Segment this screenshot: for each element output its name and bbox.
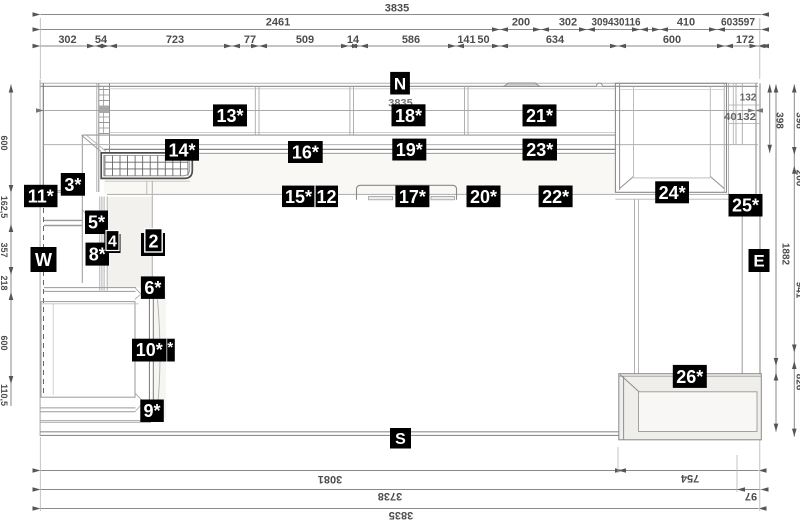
svg-text:172: 172 <box>736 34 754 46</box>
svg-text:600: 600 <box>0 135 9 150</box>
svg-text:19*: 19* <box>396 140 423 160</box>
svg-text:302: 302 <box>559 17 577 29</box>
svg-text:941: 941 <box>794 282 800 299</box>
svg-text:634: 634 <box>546 34 565 46</box>
svg-text:14: 14 <box>347 34 360 46</box>
svg-text:1882: 1882 <box>780 243 791 266</box>
svg-text:132: 132 <box>740 93 757 104</box>
svg-text:4: 4 <box>108 234 117 251</box>
svg-text:18*: 18* <box>395 106 422 126</box>
svg-text:509: 509 <box>296 34 314 46</box>
svg-text:17*: 17* <box>399 187 426 207</box>
svg-text:754: 754 <box>680 472 699 484</box>
svg-text:357: 357 <box>0 242 9 257</box>
svg-text:723: 723 <box>166 34 184 46</box>
svg-text:26*: 26* <box>676 367 703 387</box>
svg-text:826: 826 <box>794 374 800 391</box>
svg-text:110,5: 110,5 <box>0 384 9 406</box>
svg-text:9*: 9* <box>144 401 161 421</box>
svg-text:22*: 22* <box>542 187 569 207</box>
svg-text:*: * <box>167 339 173 356</box>
svg-text:3835: 3835 <box>385 3 409 15</box>
svg-text:16*: 16* <box>292 142 319 162</box>
svg-text:600: 600 <box>663 34 681 46</box>
svg-text:8*: 8* <box>89 245 106 265</box>
svg-text:25*: 25* <box>732 196 759 216</box>
svg-text:586: 586 <box>402 34 420 46</box>
svg-text:302: 302 <box>58 34 76 46</box>
svg-text:20*: 20* <box>470 187 497 207</box>
svg-text:3835: 3835 <box>389 509 413 520</box>
svg-text:24*: 24* <box>659 183 686 203</box>
svg-text:23*: 23* <box>526 140 553 160</box>
svg-text:11*: 11* <box>28 186 54 206</box>
svg-text:309430116: 309430116 <box>592 17 641 29</box>
svg-text:200: 200 <box>794 170 800 187</box>
svg-text:E: E <box>753 252 764 271</box>
svg-text:W: W <box>35 250 52 270</box>
svg-text:162,5: 162,5 <box>0 196 9 219</box>
svg-text:600: 600 <box>0 335 9 350</box>
svg-text:2461: 2461 <box>266 17 290 29</box>
svg-text:S: S <box>395 431 406 448</box>
svg-text:97: 97 <box>745 490 757 502</box>
svg-text:410: 410 <box>677 17 695 29</box>
svg-text:603597: 603597 <box>721 17 755 29</box>
svg-text:N: N <box>394 74 406 93</box>
svg-text:3081: 3081 <box>318 473 342 485</box>
svg-text:398: 398 <box>774 112 785 129</box>
svg-text:200: 200 <box>512 17 530 29</box>
svg-text:5*: 5* <box>88 213 105 233</box>
svg-text:398: 398 <box>794 112 800 129</box>
svg-text:14*: 14* <box>168 140 195 160</box>
svg-text:3738: 3738 <box>378 490 402 502</box>
svg-text:15*: 15* <box>285 187 312 207</box>
svg-text:77: 77 <box>244 34 256 46</box>
svg-text:141: 141 <box>457 34 475 46</box>
svg-text:2: 2 <box>148 232 158 252</box>
svg-text:6*: 6* <box>144 278 161 298</box>
svg-text:13*: 13* <box>216 106 243 126</box>
svg-text:40132: 40132 <box>724 112 756 123</box>
svg-text:12: 12 <box>316 187 336 207</box>
svg-text:54: 54 <box>95 34 108 46</box>
svg-text:21*: 21* <box>526 106 553 126</box>
svg-text:50: 50 <box>477 34 489 46</box>
svg-text:218: 218 <box>0 275 9 290</box>
svg-text:3*: 3* <box>64 175 81 195</box>
svg-text:10*: 10* <box>136 340 163 360</box>
